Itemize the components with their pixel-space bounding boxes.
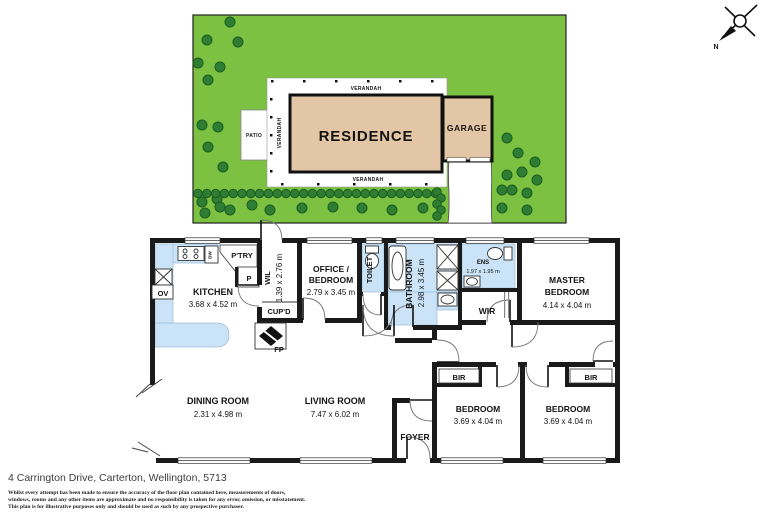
garage-door <box>447 158 466 162</box>
basin-icon <box>438 293 457 306</box>
bedroom-left-dims: 3.69 x 4.04 m <box>454 417 503 426</box>
bathroom-dims: 2.98 x 3.45 m <box>417 258 426 307</box>
bedroom-left-label: BEDROOM <box>456 404 500 414</box>
disclaimer-line-1: Whilst every attempt has been made to en… <box>8 490 286 496</box>
verandah-left-label: VERANDAH <box>277 118 283 149</box>
site-plan-map: RESIDENCE GARAGE PATIO VERANDAH VERANDAH… <box>193 15 566 223</box>
bir-left-label: BIR <box>453 373 467 382</box>
basin-icon <box>464 276 480 287</box>
verandah-bottom-label: VERANDAH <box>353 177 384 183</box>
wardrobe-shelf <box>504 292 509 318</box>
bir-right-label: BIR <box>585 373 599 382</box>
wil-dims: 1.39 x 2.76 m <box>275 253 284 302</box>
p-label: P <box>246 274 251 283</box>
patio-label: PATIO <box>246 133 262 139</box>
ensuite-label: ENS <box>477 260 489 266</box>
north-label: N <box>713 44 718 51</box>
footer: 4 Carrington Drive, Carterton, Wellingto… <box>8 472 306 510</box>
sink-icon <box>155 269 172 285</box>
garage-label: GARAGE <box>447 123 487 133</box>
ensuite-dims: 1.97 x 1.95 m <box>466 269 500 275</box>
office-dims: 2.79 x 3.45 m <box>307 288 356 297</box>
master-bedroom-dims: 4.14 x 4.04 m <box>543 301 592 310</box>
cupboard-label: CUP'D <box>267 307 291 316</box>
shower-icon <box>437 271 458 290</box>
toilet-icon <box>488 247 513 260</box>
garage-door <box>470 158 490 162</box>
driveway <box>448 160 492 223</box>
master-bedroom-label-line2: BEDROOM <box>545 287 589 297</box>
kitchen-label: KITCHEN <box>193 287 233 297</box>
master-bedroom-label-line1: MASTER <box>549 275 585 285</box>
living-room-dims: 7.47 x 6.02 m <box>311 410 360 419</box>
dining-room-label: DINING ROOM <box>187 396 249 406</box>
disclaimer-line-3: This plan is for illustrative purposes o… <box>8 504 244 510</box>
office-label-line1: OFFICE / <box>313 264 350 274</box>
wir-label: WIR <box>479 306 496 316</box>
floor-plan-drawing: KITCHEN 3.68 x 4.52 m OV DW P'TRY P WIL … <box>132 220 620 463</box>
dishwasher-label: DW <box>208 251 213 259</box>
residence-label: RESIDENCE <box>319 128 414 145</box>
dining-room-dims: 2.31 x 4.98 m <box>194 410 243 419</box>
oven-label: OV <box>158 289 169 298</box>
fireplace-label: FP <box>274 345 284 354</box>
wil-label: WIL <box>263 271 272 285</box>
bedroom-right-dims: 3.69 x 4.04 m <box>544 417 593 426</box>
pantry-label: P'TRY <box>231 251 253 260</box>
verandah-top-label: VERANDAH <box>351 86 382 92</box>
toilet-label: TOILET <box>365 256 374 283</box>
foyer-label: FOYER <box>400 432 429 442</box>
bedroom-right-label: BEDROOM <box>546 404 590 414</box>
floor-plan-image: RESIDENCE GARAGE PATIO VERANDAH VERANDAH… <box>0 0 768 512</box>
shower-icon <box>437 245 458 269</box>
kitchen-dims: 3.68 x 4.52 m <box>189 300 238 309</box>
disclaimer-line-2: windows, rooms and any other items are a… <box>8 497 306 503</box>
bathroom-label: BATHROOM <box>404 259 414 308</box>
wall-break-marks <box>132 379 162 456</box>
living-room-label: LIVING ROOM <box>305 396 366 406</box>
compass-icon: N <box>713 5 757 51</box>
office-label-line2: BEDROOM <box>309 275 353 285</box>
walls <box>150 238 620 463</box>
address-text: 4 Carrington Drive, Carterton, Wellingto… <box>8 472 227 484</box>
stove-icon <box>178 247 204 261</box>
floor-plan-page: RESIDENCE GARAGE PATIO VERANDAH VERANDAH… <box>0 0 768 512</box>
